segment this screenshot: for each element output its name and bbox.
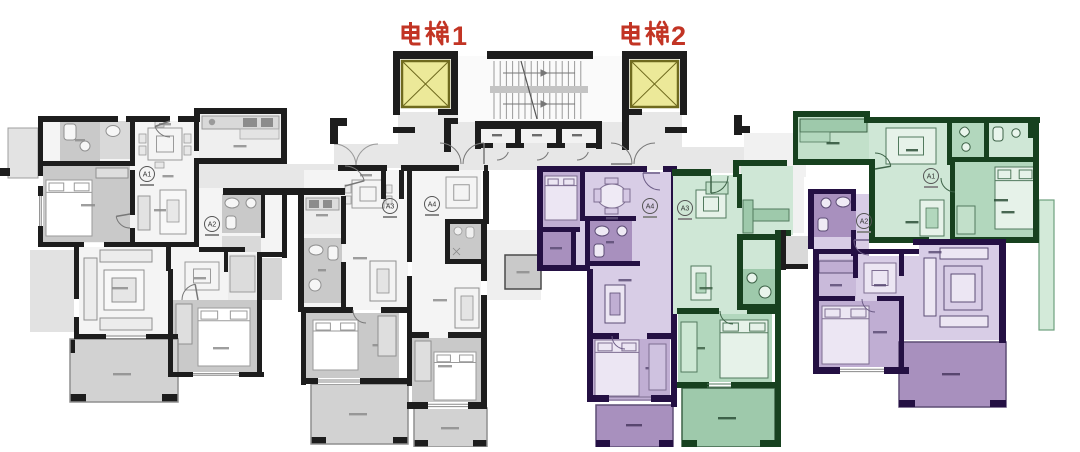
svg-text:A4: A4 <box>428 202 437 209</box>
svg-text:A1: A1 <box>143 172 152 179</box>
svg-text:A2: A2 <box>860 219 869 226</box>
svg-text:1: 1 <box>452 21 467 51</box>
svg-text:A3: A3 <box>386 204 395 211</box>
svg-text:A1: A1 <box>927 174 936 181</box>
svg-text:2: 2 <box>671 21 686 51</box>
svg-text:A2: A2 <box>208 222 217 229</box>
svg-text:A4: A4 <box>646 204 655 211</box>
svg-text:A3: A3 <box>681 206 690 213</box>
